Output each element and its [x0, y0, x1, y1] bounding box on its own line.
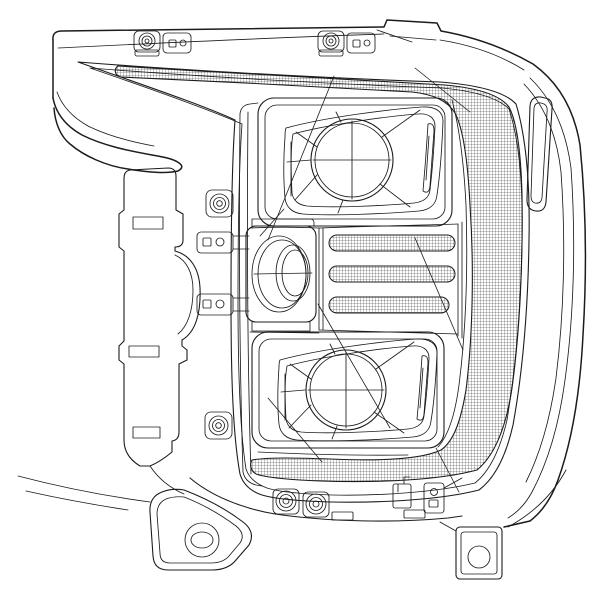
- led-slat-panel: [250, 222, 462, 338]
- upper-projector-lens: [311, 119, 393, 201]
- tab-clip-upper: [197, 232, 249, 253]
- screw-boss-bottom-2: [303, 492, 329, 517]
- upper-projector-module: [258, 98, 452, 226]
- lower-lens-crosshair: [308, 352, 384, 428]
- right-mounting-foot: [440, 522, 502, 579]
- screw-boss-lower: [205, 412, 232, 439]
- turn-signal-lamp: [246, 219, 316, 331]
- bracket-slot-3: [133, 427, 160, 438]
- led-slat-3: [329, 297, 449, 313]
- left-foot-bolt-hole: [191, 532, 213, 548]
- lower-projector-lens: [306, 350, 386, 430]
- bracket-slot-1: [133, 217, 163, 229]
- led-slat-1: [329, 235, 455, 251]
- top-mounting-clips: [134, 30, 412, 56]
- bracket-slot-2: [129, 346, 159, 357]
- left-bracket: [119, 168, 200, 466]
- upper-lens-crosshair: [313, 121, 391, 199]
- led-slat-2: [329, 266, 455, 282]
- bottom-fasteners: [273, 477, 462, 517]
- headlight-technical-drawing: [0, 0, 600, 600]
- side-tab: [527, 97, 552, 211]
- flat-clip-right: [347, 30, 412, 53]
- bottom-clip-2: [424, 478, 462, 513]
- grommet-clip-right: [318, 31, 344, 56]
- drawing-canvas: [0, 0, 600, 600]
- left-mounting-foot: [150, 489, 252, 570]
- tab-clip-lower: [197, 294, 249, 315]
- lower-projector-module: [252, 332, 444, 448]
- right-foot-bolt-hole: [468, 546, 490, 568]
- screw-boss-upper: [206, 190, 233, 217]
